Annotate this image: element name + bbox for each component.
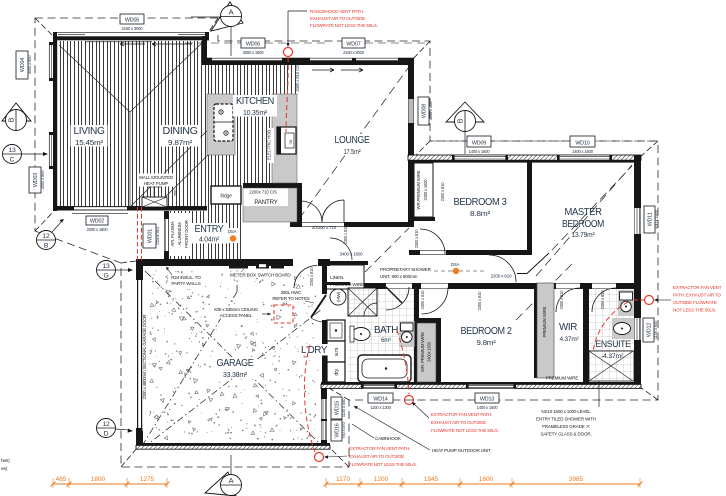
svg-text:750 x 870: 750 x 870	[341, 421, 346, 438]
svg-text:WD13: WD13	[480, 396, 494, 402]
svg-text:PATH. EXHAUST AIR TO: PATH. EXHAUST AIR TO	[673, 293, 722, 298]
svg-text:3985: 3985	[569, 476, 584, 483]
svg-text:1400 x 1600: 1400 x 1600	[477, 405, 499, 410]
svg-text:1275: 1275	[140, 476, 155, 483]
svg-text:EXHAUST AIR TO OUTSIDE: EXHAUST AIR TO OUTSIDE	[349, 454, 404, 459]
svg-text:BEDROOM 3: BEDROOM 3	[454, 197, 508, 208]
svg-text:ENSUITE: ENSUITE	[596, 339, 631, 350]
svg-text:WD07: WD07	[346, 41, 360, 47]
svg-text:1400 x 1600: 1400 x 1600	[572, 149, 594, 154]
svg-text:6m²: 6m²	[381, 337, 392, 344]
svg-text:ELECTRIC HOB: ELECTRIC HOB	[267, 130, 272, 160]
svg-text:PREMIUM WIRE: PREMIUM WIRE	[546, 376, 579, 381]
svg-text:2300 x 810: 2300 x 810	[440, 182, 445, 202]
svg-text:GARAGE: GARAGE	[217, 358, 255, 369]
svg-text:D: D	[104, 431, 109, 438]
svg-text:REFER TO NOTES: REFER TO NOTES	[272, 296, 309, 301]
svg-text:4.04m²: 4.04m²	[199, 237, 220, 244]
svg-text:12: 12	[102, 421, 110, 428]
svg-text:EXTRACTOR FAN VENT PATH.: EXTRACTOR FAN VENT PATH.	[431, 412, 492, 417]
svg-text:WD05: WD05	[125, 17, 139, 23]
svg-text:WD10: WD10	[575, 140, 589, 146]
svg-text:SAFETY GLASS & DOOR.: SAFETY GLASS & DOOR.	[540, 432, 591, 437]
svg-text:13.79m²: 13.79m²	[572, 232, 596, 239]
svg-text:LINEN.: LINEN.	[330, 275, 344, 281]
svg-text:500 x 1800: 500 x 1800	[654, 209, 659, 229]
svg-text:LOUNGE: LOUNGE	[335, 134, 370, 146]
svg-text:635 x 535mm CEILING: 635 x 535mm CEILING	[214, 307, 258, 312]
svg-text:WD16: WD16	[334, 423, 340, 437]
svg-text:B: B	[458, 118, 465, 123]
svg-text:3000 x 900: 3000 x 900	[27, 55, 32, 75]
svg-text:EXHAUST AIR TO OUTSIDE: EXHAUST AIR TO OUTSIDE	[431, 420, 486, 425]
svg-text:CABINHOOK: CABINHOOK	[375, 436, 402, 441]
svg-text:APL PLASMA: APL PLASMA	[170, 221, 175, 246]
svg-text:9.87m²: 9.87m²	[168, 140, 193, 147]
svg-text:DSA: DSA	[451, 262, 460, 267]
svg-text:3000 x 900: 3000 x 900	[428, 101, 433, 121]
svg-text:DINING: DINING	[163, 125, 198, 137]
svg-text:WD04: WD04	[20, 58, 26, 72]
svg-text:3300 x 810 C/S: 3300 x 810 C/S	[295, 64, 300, 92]
svg-text:MASTER: MASTER	[565, 207, 602, 218]
svg-text:33.38m²: 33.38m²	[223, 372, 248, 379]
svg-text:ENTRY TILED SHOWER WITH: ENTRY TILED SHOWER WITH	[536, 417, 596, 422]
svg-text:2150 x 3000: 2150 x 3000	[343, 50, 365, 55]
svg-text:8.8m²: 8.8m²	[470, 211, 491, 218]
svg-text:2300 x 810: 2300 x 810	[559, 290, 564, 310]
svg-text:2300 x 810: 2300 x 810	[420, 290, 425, 310]
svg-text:2200 x 810: 2200 x 810	[491, 274, 512, 279]
svg-text:3400 x 1600: 3400 x 1600	[339, 252, 363, 257]
svg-text:WD09: WD09	[472, 140, 486, 146]
svg-text:hes): hes)	[1, 458, 10, 464]
svg-text:3000 x 900: 3000 x 900	[40, 170, 45, 190]
svg-text:3000 x 1800: 3000 x 1800	[243, 50, 265, 55]
svg-text:BATH: BATH	[374, 325, 398, 336]
svg-text:15.45m²: 15.45m²	[75, 140, 104, 147]
svg-text:1845: 1845	[424, 476, 439, 483]
svg-text:WD08: WD08	[421, 104, 427, 118]
svg-text:2200 x 810: 2200 x 810	[309, 267, 314, 287]
svg-text:2000 x 1800: 2000 x 1800	[87, 227, 109, 232]
svg-text:NS10 1500 x 1000 LEVEL: NS10 1500 x 1000 LEVEL	[541, 409, 591, 414]
svg-text:A: A	[229, 8, 234, 17]
svg-text:R24 INSUL. TO: R24 INSUL. TO	[171, 275, 201, 280]
svg-text:OUTSIDE FLOWRATE: OUTSIDE FLOWRATE	[673, 300, 717, 305]
svg-text:FRAMELESS GRADE 'A': FRAMELESS GRADE 'A'	[542, 424, 590, 429]
svg-text:-4.37m²: -4.37m²	[601, 353, 624, 360]
svg-text:BEDROOM: BEDROOM	[562, 219, 604, 230]
svg-text:FRONT DOOR: FRONT DOOR	[184, 220, 189, 247]
svg-text:BEDROOM 2: BEDROOM 2	[461, 326, 513, 337]
svg-text:2300 x 810: 2300 x 810	[414, 229, 419, 249]
svg-text:1100 x 1300: 1100 x 1300	[370, 405, 391, 410]
svg-text:w.m.: w.m.	[334, 347, 340, 356]
svg-text:LIVING: LIVING	[74, 125, 105, 137]
svg-text:1170: 1170	[336, 476, 350, 483]
svg-text:2200x 710 C/S: 2200x 710 C/S	[249, 190, 277, 195]
svg-text:465: 465	[56, 476, 67, 483]
svg-text:1800: 1800	[91, 476, 106, 483]
svg-text:FLOWRATE NOT LESS THE 50L/s.: FLOWRATE NOT LESS THE 50L/s.	[431, 428, 499, 433]
svg-text:EXTRACTOR FAN VENT: EXTRACTOR FAN VENT	[673, 285, 722, 290]
svg-text:2300 x 810: 2300 x 810	[477, 291, 482, 311]
svg-text:350L HWC: 350L HWC	[281, 290, 303, 295]
svg-text:FLOWRATE NOT LESS THE 50L/s.: FLOWRATE NOT LESS THE 50L/s.	[349, 462, 417, 467]
svg-text:C: C	[10, 157, 15, 164]
svg-text:METER BOX: METER BOX	[230, 273, 256, 278]
svg-text:1600: 1600	[479, 476, 494, 483]
svg-text:WR.PREMIUM WIRE: WR.PREMIUM WIRE	[416, 170, 421, 209]
svg-text:es): es)	[1, 466, 8, 472]
svg-text:2/2200 x 710: 2/2200 x 710	[312, 225, 337, 230]
svg-text:12: 12	[42, 233, 50, 240]
svg-text:A: A	[229, 476, 234, 485]
svg-text:WIR: WIR	[559, 322, 577, 333]
svg-text:2150 x 3000: 2150 x 3000	[122, 26, 144, 31]
svg-text:PROPRIETARY SHOWER: PROPRIETARY SHOWER	[380, 267, 432, 272]
svg-text:KITCHEN: KITCHEN	[236, 95, 274, 107]
svg-text:fridge: fridge	[220, 194, 232, 200]
svg-text:dry.: dry.	[334, 368, 340, 375]
svg-text:WD06: WD06	[246, 41, 260, 47]
svg-text:4.37m²: 4.37m²	[560, 336, 580, 343]
svg-text:SWITCH BOARD: SWITCH BOARD	[258, 273, 291, 278]
svg-text:1100 x 600: 1100 x 600	[653, 320, 658, 339]
svg-text:DSA: DSA	[228, 229, 237, 234]
svg-text:ALUMINIUM: ALUMINIUM	[177, 222, 182, 245]
svg-text:EXHAUST AIR TO OUTSIDE: EXHAUST AIR TO OUTSIDE	[310, 16, 365, 21]
svg-text:(HW): (HW)	[336, 291, 341, 302]
svg-text:FLOWRATE NOT LESS THE 50L/s.: FLOWRATE NOT LESS THE 50L/s.	[310, 23, 378, 28]
svg-text:13: 13	[8, 147, 16, 154]
svg-text:RANGEHOOD VENT PATH.: RANGEHOOD VENT PATH.	[310, 9, 364, 14]
svg-text:L'DRY: L'DRY	[301, 345, 328, 356]
svg-text:2300 x 810: 2300 x 810	[600, 290, 605, 310]
svg-text:G: G	[103, 273, 108, 280]
svg-text:WD02: WD02	[90, 218, 104, 224]
svg-text:WALL MOUNTED: WALL MOUNTED	[139, 175, 174, 180]
svg-text:1400 x 1600: 1400 x 1600	[469, 149, 491, 154]
svg-text:700: 700	[173, 189, 178, 196]
svg-text:WD15: WD15	[334, 401, 340, 415]
svg-text:2400x 1600: 2400x 1600	[427, 341, 432, 362]
svg-text:B: B	[9, 117, 16, 122]
svg-text:WD03: WD03	[33, 173, 39, 187]
svg-text:2150x 910: 2150x 910	[155, 226, 160, 245]
svg-text:WD11: WD11	[647, 212, 653, 226]
svg-text:B: B	[44, 243, 49, 250]
svg-text:9.8m²: 9.8m²	[477, 340, 497, 347]
svg-text:13: 13	[102, 263, 110, 270]
svg-text:1200: 1200	[374, 476, 389, 483]
svg-text:PARTY WALLS: PARTY WALLS	[171, 281, 200, 286]
svg-text:PREMIUM WIRE: PREMIUM WIRE	[542, 306, 547, 337]
svg-text:WD12: WD12	[646, 323, 652, 337]
svg-text:2300 x 810: 2300 x 810	[343, 225, 348, 245]
svg-text:HEAT PUMP OUTDOOR UNIT: HEAT PUMP OUTDOOR UNIT	[432, 448, 491, 453]
svg-text:WD01: WD01	[147, 229, 153, 243]
svg-text:ACCESS PANEL: ACCESS PANEL	[220, 313, 253, 318]
svg-text:NOT LESS THE 50L/s.: NOT LESS THE 50L/s.	[673, 308, 716, 313]
svg-text:UNIT, 900 x 900mm: UNIT, 900 x 900mm	[380, 274, 418, 279]
svg-text:EXTRACTOR FAN VENT PATH.: EXTRACTOR FAN VENT PATH.	[349, 446, 410, 451]
svg-text:17.5m²: 17.5m²	[344, 149, 362, 156]
svg-text:PANTRY: PANTRY	[254, 199, 277, 206]
svg-text:WD14: WD14	[373, 396, 387, 402]
svg-text:2400 x 1600: 2400 x 1600	[423, 179, 428, 201]
svg-text:WR. PREMIUM WIRE: WR. PREMIUM WIRE	[420, 332, 425, 372]
svg-text:1100 x 450: 1100 x 450	[341, 398, 346, 417]
svg-text:ENTRY: ENTRY	[195, 224, 225, 235]
svg-text:2200 x 4800mm SECTIONAL GARAGE: 2200 x 4800mm SECTIONAL GARAGE DOOR	[142, 315, 147, 400]
svg-text:Rc: Rc	[289, 140, 294, 145]
svg-text:10.35m²: 10.35m²	[243, 110, 268, 117]
svg-text:HEAT PUMP: HEAT PUMP	[144, 181, 169, 186]
svg-text:PREMIUM WIRE: PREMIUM WIRE	[330, 282, 364, 288]
